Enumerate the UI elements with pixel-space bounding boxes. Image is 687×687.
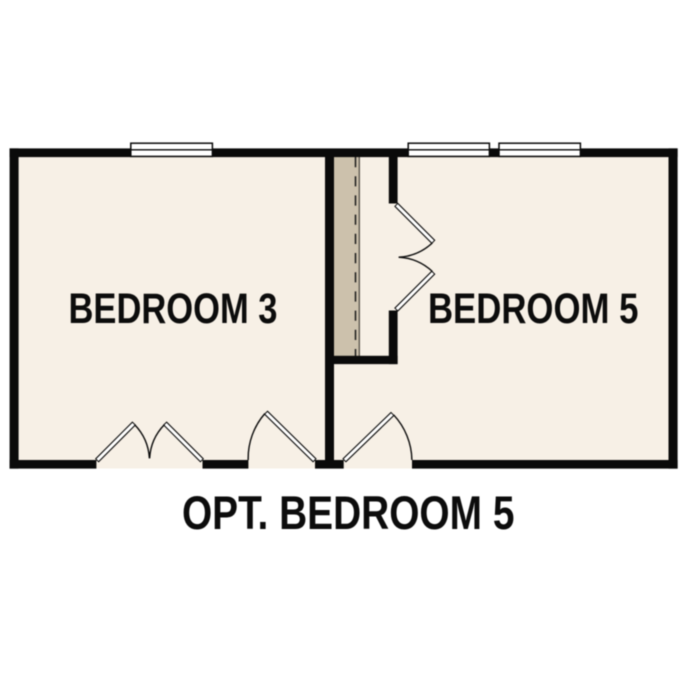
svg-text:BEDROOM 5: BEDROOM 5 [428, 285, 639, 333]
svg-text:BEDROOM 3: BEDROOM 3 [69, 285, 278, 333]
svg-text:OPT. BEDROOM 5: OPT. BEDROOM 5 [182, 487, 515, 540]
